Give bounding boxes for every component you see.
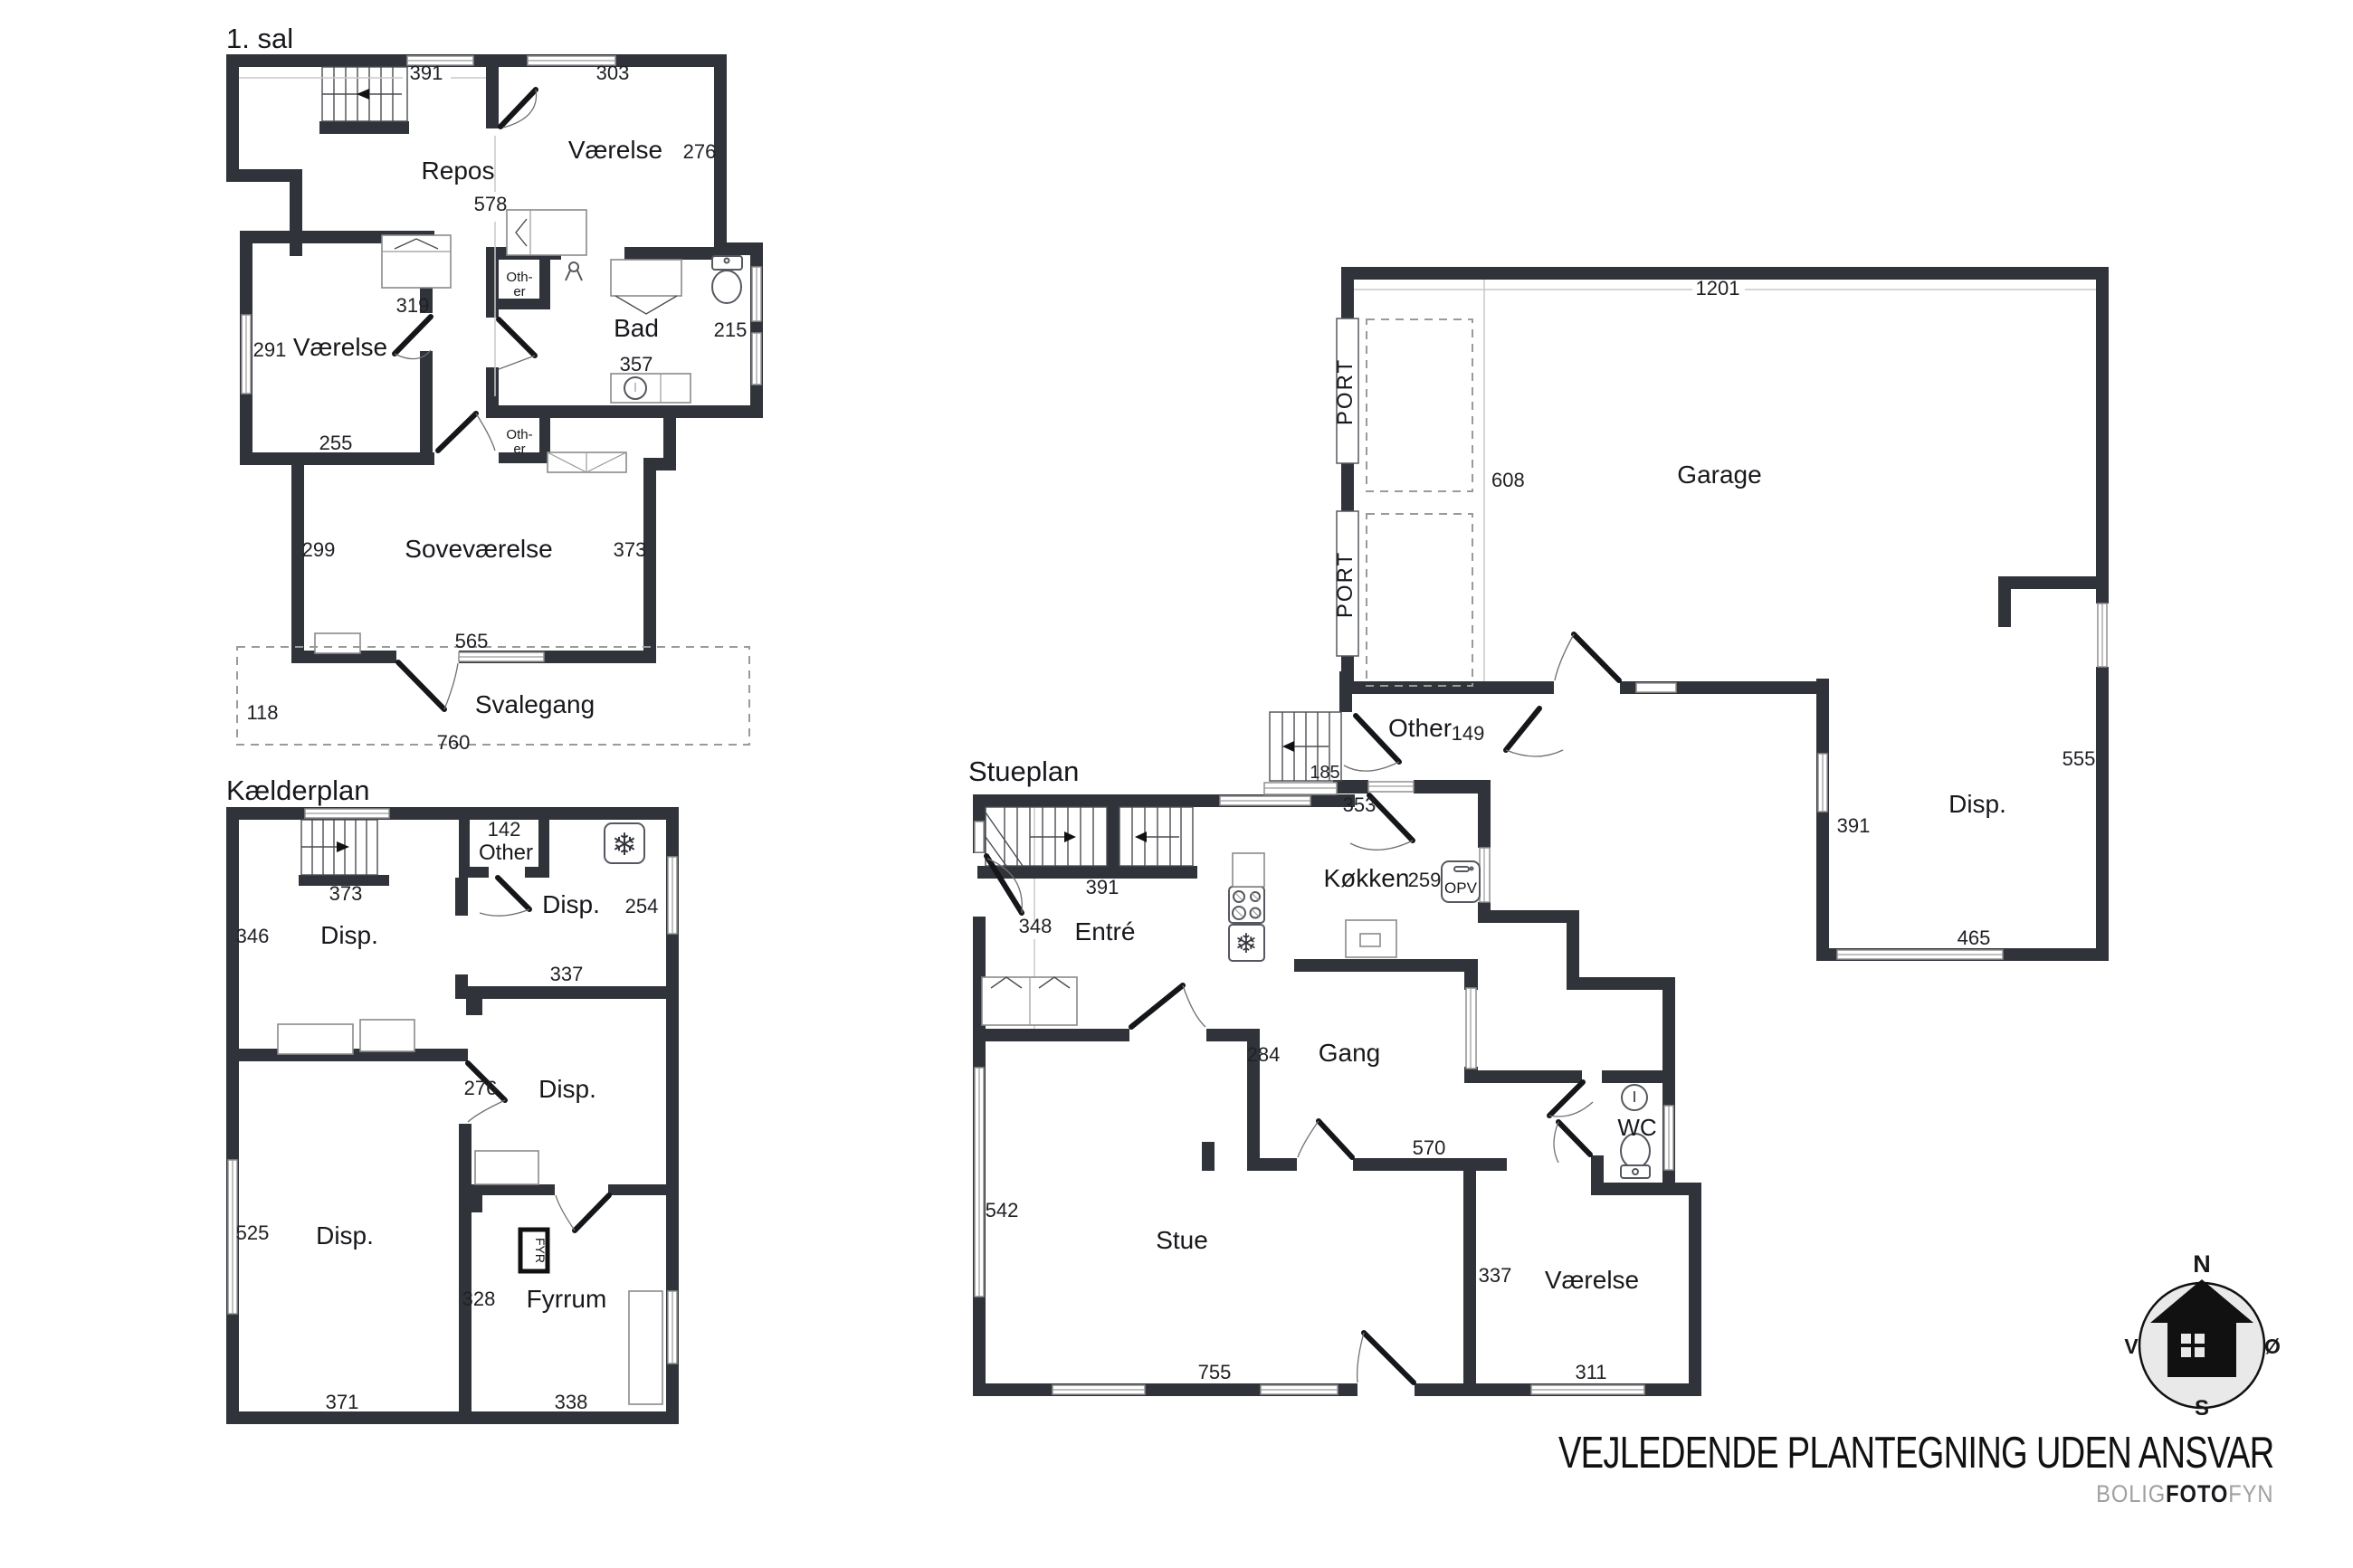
dim-337: 337 (1479, 1264, 1512, 1287)
dim-149: 149 (1452, 722, 1485, 745)
brand-foto: FOTO (2166, 1480, 2228, 1507)
dim-319: 319 (396, 294, 430, 317)
dim-311: 311 (1575, 1361, 1606, 1383)
dim-118: 118 (246, 701, 278, 724)
dim-291: 291 (253, 338, 287, 361)
brand-logo: BOLIGFOTOFYN (1466, 1480, 2273, 1508)
dim-570: 570 (1413, 1136, 1446, 1159)
stair-direction-arrow (337, 841, 349, 852)
dim-142: 142 (488, 818, 521, 841)
ground-floor-staircase (986, 807, 1193, 866)
dim-465: 465 (1958, 927, 1991, 949)
room-label-repos: Repos (422, 157, 495, 185)
dishwasher-icon: OPV (1442, 861, 1480, 902)
dim-348: 348 (1019, 915, 1053, 937)
stair-direction-arrow (357, 89, 369, 100)
footer: VEJLEDENDE PLANTEGNING UDEN ANSVAR BOLIG… (1357, 1428, 2273, 1508)
room-label-other-2b: er (513, 442, 525, 457)
dishwasher-label: OPV (1444, 879, 1478, 897)
compass-east-label: Ø (2264, 1335, 2281, 1358)
dim-525: 525 (236, 1221, 270, 1244)
dim-338: 338 (555, 1391, 588, 1413)
dim-328: 328 (462, 1288, 496, 1310)
shower-icon (611, 260, 681, 314)
room-label-disp-sw: Disp. (316, 1221, 374, 1250)
dim-259: 259 (1408, 869, 1442, 891)
wardrobe-icon (548, 452, 626, 472)
compass-north-label: N (2193, 1250, 2211, 1278)
room-label-other-1b: er (513, 284, 525, 299)
dim-608: 608 (1491, 469, 1525, 491)
ground-floor-plan: Stueplan (959, 253, 2145, 1457)
ground-floor-windows (975, 603, 2107, 1394)
dim-299: 299 (302, 538, 336, 561)
room-label-bad: Bad (614, 314, 659, 342)
dim-303: 303 (596, 62, 630, 84)
compass-west-label: V (2124, 1335, 2139, 1358)
first-floor-staircase (322, 67, 407, 121)
dim-276: 276 (683, 140, 717, 163)
boiler-icon: FYR (520, 1230, 548, 1271)
freezer-icon: ❄ (605, 823, 644, 863)
dim-760: 760 (437, 731, 471, 754)
stove-icon (1229, 887, 1264, 923)
room-label-koekken: Køkken (1324, 864, 1410, 892)
dim-337: 337 (550, 963, 584, 985)
room-label-other-1: Oth- (506, 270, 532, 285)
plan-title-ground-floor: Stueplan (968, 755, 1079, 787)
room-label-disp-ne: Disp. (542, 890, 600, 918)
room-label-disp-mid: Disp. (538, 1075, 596, 1103)
dim-373: 373 (329, 882, 363, 905)
boiler-label: FYR (533, 1238, 548, 1263)
dim-391-disp: 391 (1837, 814, 1871, 837)
room-label-disp-nw: Disp. (320, 921, 378, 949)
hook-icon (566, 262, 582, 280)
room-label-sovevaerelse: Soveværelse (405, 535, 552, 563)
wardrobe-icon (982, 977, 1077, 1025)
brand-fyn: FYN (2228, 1480, 2273, 1507)
room-label-stue: Stue (1156, 1226, 1208, 1254)
dim-578: 578 (474, 193, 508, 215)
dim-391-stairs: 391 (1086, 876, 1119, 898)
dim-755: 755 (1198, 1361, 1232, 1383)
dim-215: 215 (714, 318, 748, 341)
room-label-vaerelse-left: Værelse (293, 333, 387, 361)
ground-floor-walls (973, 267, 2109, 1396)
kitchen-sink-icon (1346, 920, 1396, 957)
basement-staircase (301, 820, 377, 875)
room-label-port-bottom: PORT (1333, 551, 1357, 618)
svg-text:❄: ❄ (612, 828, 638, 862)
counter-icon (1233, 853, 1264, 887)
compass-south-label: S (2195, 1396, 2209, 1421)
room-label-other-2: Oth- (506, 427, 532, 442)
dim-373: 373 (614, 538, 647, 561)
wc-sink-icon (1622, 1085, 1647, 1110)
fridge-freezer-icon: ❄ (1229, 925, 1264, 961)
dim-276: 276 (464, 1077, 498, 1099)
bed-icon (507, 210, 586, 255)
dim-353: 353 (1343, 794, 1377, 816)
basement-windows (228, 809, 677, 1364)
dim-565: 565 (455, 630, 489, 652)
bed-icon (382, 235, 451, 288)
room-label-entre: Entré (1075, 917, 1136, 946)
room-label-svalegang: Svalegang (475, 690, 595, 718)
plan-title-basement: Kælderplan (226, 780, 370, 806)
room-label-other: Other (479, 841, 533, 865)
dim-254: 254 (625, 895, 659, 917)
dim-346: 346 (236, 925, 270, 947)
dim-284: 284 (1247, 1043, 1281, 1066)
dim-542: 542 (986, 1199, 1019, 1221)
toilet-icon (712, 256, 742, 303)
room-label-garage: Garage (1677, 461, 1761, 489)
dim-371: 371 (326, 1391, 359, 1413)
room-label-disp: Disp. (1948, 790, 2006, 818)
room-label-vaerelse: Værelse (1545, 1266, 1639, 1294)
room-label-gang: Gang (1319, 1039, 1381, 1067)
basement-walls (226, 807, 679, 1424)
dim-555: 555 (2062, 747, 2096, 770)
room-label-port-top: PORT (1333, 358, 1357, 425)
first-floor-plan: 1. sal (217, 18, 778, 755)
svg-text:❄: ❄ (1234, 929, 1257, 959)
sink-icon (611, 374, 691, 403)
brand-bolig: BOLIG (2096, 1480, 2166, 1507)
dim-255: 255 (319, 432, 353, 454)
disclaimer-text: VEJLEDENDE PLANTEGNING UDEN ANSVAR (1558, 1428, 2273, 1478)
room-label-vaerelse-right: Værelse (568, 136, 662, 164)
dresser-icon (315, 633, 360, 653)
compass-rose: N S V Ø (2116, 1250, 2288, 1436)
dim-357: 357 (620, 353, 653, 375)
room-label-other: Other (1388, 714, 1452, 742)
dim-1201: 1201 (1696, 277, 1740, 299)
room-label-wc: WC (1617, 1114, 1656, 1141)
dim-185: 185 (1310, 763, 1339, 783)
room-label-fyrrum: Fyrrum (527, 1285, 607, 1313)
basement-plan: Kælderplan (217, 780, 706, 1459)
plan-title-first-floor: 1. sal (226, 23, 293, 54)
dim-391: 391 (410, 62, 443, 84)
